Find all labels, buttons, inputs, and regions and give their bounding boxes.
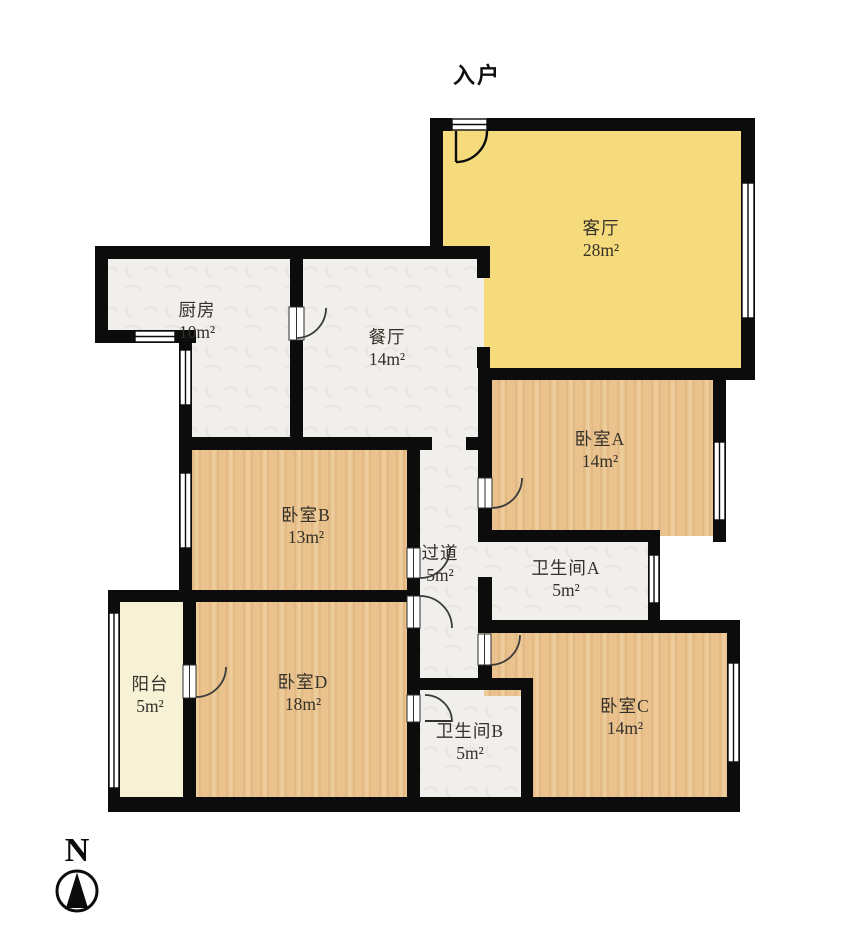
room-area: 14m² [600,717,650,739]
window-icon [109,613,119,788]
window-icon [742,183,754,318]
wall-segment [183,590,196,665]
wall-segment [478,530,660,542]
wall-segment [179,437,432,450]
window-icon [728,663,739,762]
window-icon [180,473,191,548]
room-living-room [470,250,746,374]
wall-segment [477,259,490,278]
room-label-bedroom-c: 卧室C 14m² [600,695,650,739]
wall-segment [478,577,492,633]
room-name: 卧室B [281,504,331,526]
room-area: 28m² [583,239,620,261]
window-icon [714,442,725,520]
room-name: 餐厅 [369,326,406,348]
wall-segment [407,722,420,797]
wall-segment [183,698,196,797]
wall-segment [477,347,490,368]
room-label-bedroom-a: 卧室A 14m² [575,428,626,472]
room-label-hallway: 过道 5m² [422,542,459,586]
room-area: 14m² [369,348,406,370]
room-area: 5m² [531,579,600,601]
wall-segment [407,578,420,596]
room-label-balcony: 阳台 5m² [132,673,169,717]
room-label-dining-room: 餐厅 14m² [369,326,406,370]
room-area: 5m² [132,695,169,717]
room-label-bathroom-a: 卫生间A 5m² [531,557,600,601]
window-icon [649,555,659,603]
window-icon [135,331,175,342]
floorplan: 入户 N 客厅 28m² 厨房 10m² 餐厅 14m² 卧室A 14m² 卧室… [0,0,846,927]
compass-n-label: N [65,833,90,869]
wall-segment [478,620,740,633]
wall-segment [478,368,492,478]
window-icon [180,350,191,405]
wall-segment [521,678,533,797]
room-name: 卧室D [278,671,329,693]
wall-segment [478,508,492,542]
entry-door-frame [452,119,487,130]
room-area: 5m² [422,564,459,586]
room-label-bedroom-d: 卧室D 18m² [278,671,329,715]
room-name: 厨房 [179,299,216,321]
wall-segment [407,678,533,690]
room-name: 卫生间B [436,720,504,742]
room-area: 5m² [436,742,504,764]
wall-segment [407,437,420,548]
entry-label: 入户 [453,64,501,90]
compass-north-icon [57,871,97,911]
wall-segment [290,340,303,437]
wall-segment [108,797,740,812]
room-label-bedroom-b: 卧室B 13m² [281,504,331,548]
wall-segment [430,118,443,259]
wall-segment [487,118,755,131]
room-area: 10m² [179,321,216,343]
wall-segment [108,590,420,602]
room-name: 卧室C [600,695,650,717]
room-label-kitchen: 厨房 10m² [179,299,216,343]
room-label-living-room: 客厅 28m² [583,217,620,261]
room-label-bathroom-b: 卫生间B 5m² [436,720,504,764]
room-name: 卧室A [575,428,626,450]
floorplan-drawing [0,0,846,927]
room-kitchen [188,252,296,444]
room-area: 13m² [281,526,331,548]
wall-segment [478,665,492,690]
room-name: 客厅 [583,217,620,239]
wall-segment [290,246,303,307]
wall-segment [407,628,420,695]
wall-segment [95,246,108,343]
room-area: 14m² [575,450,626,472]
room-area: 18m² [278,693,329,715]
room-name: 卫生间A [531,557,600,579]
room-name: 过道 [422,542,459,564]
room-name: 阳台 [132,673,169,695]
